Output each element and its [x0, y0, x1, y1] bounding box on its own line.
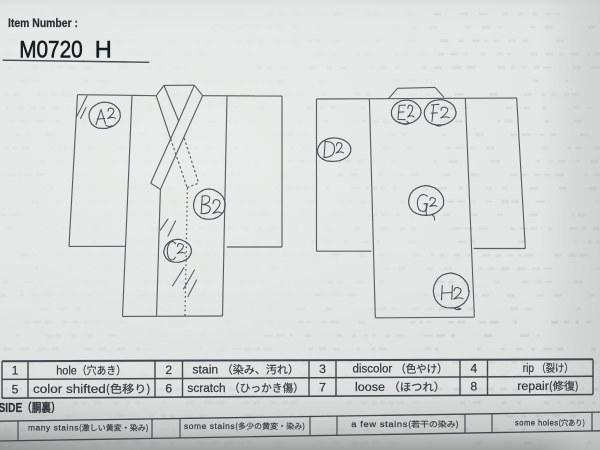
svg-text:discolor: discolor	[353, 361, 393, 375]
svg-text:6: 6	[165, 381, 172, 395]
svg-text:color shifted: color shifted	[33, 381, 106, 395]
svg-text:SIDE: SIDE	[0, 401, 22, 415]
svg-text:2: 2	[165, 363, 172, 377]
svg-text:Item Number :: Item Number :	[8, 17, 78, 30]
svg-text:many stains: many stains	[28, 423, 79, 433]
svg-text:7: 7	[319, 380, 326, 394]
svg-text:1: 1	[12, 364, 19, 378]
svg-text:rip: rip	[523, 362, 534, 375]
svg-text:8: 8	[470, 379, 477, 393]
svg-text:5: 5	[12, 382, 19, 396]
svg-text:hole: hole	[56, 365, 77, 378]
svg-text:4: 4	[470, 361, 477, 375]
svg-text:3: 3	[319, 362, 326, 376]
svg-text:stain: stain	[192, 363, 218, 377]
svg-text:M0720: M0720	[19, 37, 83, 64]
svg-text:scratch: scratch	[187, 381, 225, 395]
svg-text:a few stains: a few stains	[351, 419, 408, 428]
svg-text:loose: loose	[355, 380, 385, 394]
svg-text:repair: repair	[517, 379, 549, 393]
svg-text:some holes: some holes	[515, 418, 559, 427]
svg-text:H: H	[95, 37, 112, 64]
svg-text:some stains: some stains	[184, 421, 235, 431]
